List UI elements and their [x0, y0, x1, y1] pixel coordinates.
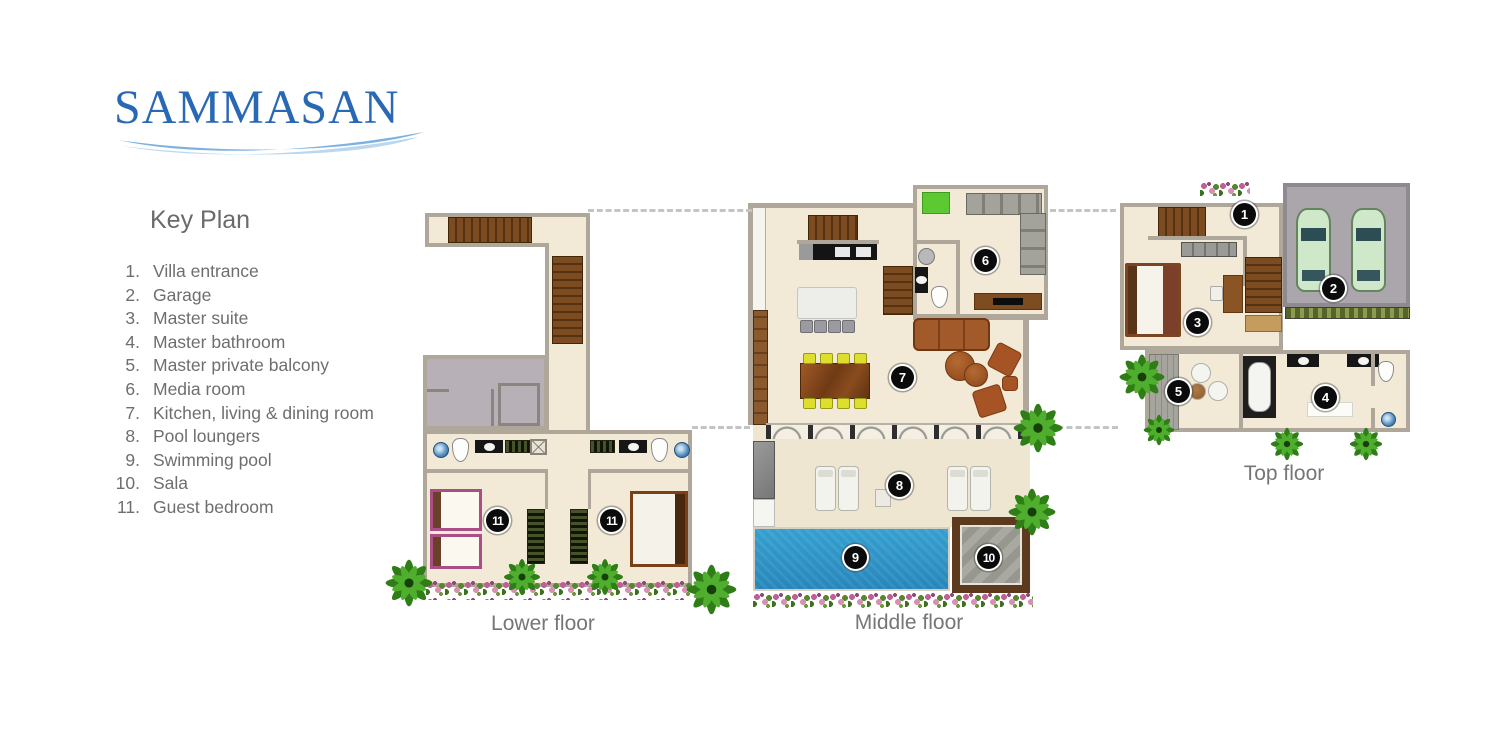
marker-guest-bedroom-2: 11 — [600, 509, 623, 532]
shower-head-icon — [433, 442, 449, 458]
round-sink — [918, 248, 935, 265]
planter-box — [753, 499, 775, 527]
marker-pool-loungers: 8 — [888, 474, 911, 497]
legend-number: 1. — [112, 260, 140, 284]
connector-line — [1050, 209, 1116, 212]
shower-cubicle — [498, 383, 540, 426]
legend-number: 11. — [112, 496, 140, 520]
marker-sala: 10 — [977, 546, 1000, 569]
legend-item: 7.Kitchen, living & dining room — [112, 402, 442, 426]
accordion-doors — [766, 423, 1025, 439]
sectional-sofa — [1020, 213, 1046, 275]
key-plan-title: Key Plan — [150, 206, 250, 235]
legend-item: 8.Pool loungers — [112, 425, 442, 449]
legend-number: 2. — [112, 284, 140, 308]
connector-line — [588, 209, 752, 212]
bar-stool — [814, 320, 827, 333]
legend-item: 4.Master bathroom — [112, 331, 442, 355]
dining-chair — [837, 353, 850, 364]
stairs — [552, 256, 583, 344]
marker-kitchen-living-dining: 7 — [891, 366, 914, 389]
palm-tree-icon — [585, 557, 625, 597]
marker-master-suite: 3 — [1186, 311, 1209, 334]
marker-media-room: 6 — [974, 249, 997, 272]
wardrobe — [570, 509, 588, 564]
shower-head-icon — [1381, 412, 1396, 427]
exterior-wall — [750, 203, 915, 208]
sink-vanity — [475, 440, 503, 453]
pool-lounger — [947, 466, 968, 511]
kitchen-island — [797, 287, 857, 319]
sink-vanity — [915, 267, 928, 293]
dining-chair — [854, 398, 867, 409]
legend-item: 9.Swimming pool — [112, 449, 442, 473]
legend-item: 3.Master suite — [112, 307, 442, 331]
interior-wall — [588, 469, 591, 509]
legend-number: 7. — [112, 402, 140, 426]
legend-item: 11.Guest bedroom — [112, 496, 442, 520]
marker-master-bathroom: 4 — [1314, 386, 1337, 409]
palm-tree-icon — [1006, 486, 1058, 538]
interior-wall — [545, 469, 548, 509]
marker-garage: 2 — [1322, 277, 1345, 300]
middle-floor-label: Middle floor — [789, 611, 1029, 635]
interior-wall — [1371, 350, 1375, 386]
side-table — [875, 489, 891, 507]
marker-guest-bedroom-1: 11 — [486, 509, 509, 532]
outdoor-shower-panel — [753, 441, 775, 499]
interior-wall — [1148, 236, 1247, 240]
twin-bed — [430, 489, 482, 531]
flower-bed — [426, 580, 692, 600]
stairs — [883, 266, 913, 315]
dining-table — [800, 363, 870, 399]
dining-chair — [820, 353, 833, 364]
legend-number: 5. — [112, 354, 140, 378]
legend-item: 10.Sala — [112, 472, 442, 496]
toilet-icon — [651, 438, 668, 462]
flower-bed — [753, 592, 1033, 609]
round-table — [1191, 363, 1211, 383]
round-table — [1189, 383, 1206, 400]
light-well — [753, 208, 766, 310]
partition-wall — [427, 389, 449, 392]
legend-number: 4. — [112, 331, 140, 355]
wardrobe — [527, 509, 545, 564]
wardrobe — [590, 440, 615, 453]
legend-number: 9. — [112, 449, 140, 473]
guest-bedrooms-block — [423, 430, 692, 587]
shrub-icon — [1142, 413, 1176, 447]
legend-number: 10. — [112, 472, 140, 496]
marker-villa-entrance: 1 — [1233, 203, 1256, 226]
bathtub-basin — [1248, 362, 1271, 412]
sink-vanity — [619, 440, 647, 453]
marker-master-balcony: 5 — [1167, 380, 1190, 403]
garage-door-strip — [1285, 307, 1410, 319]
twin-bed — [430, 534, 482, 569]
sofa — [913, 318, 990, 351]
key-plan-legend: 1.Villa entrance 2.Garage 3.Master suite… — [112, 260, 442, 520]
legend-label: Media room — [153, 378, 245, 402]
palm-tree-icon — [1011, 401, 1065, 455]
legend-number: 8. — [112, 425, 140, 449]
marker-swimming-pool: 9 — [844, 546, 867, 569]
palm-tree-icon — [684, 562, 739, 617]
closet — [1181, 242, 1237, 257]
top-floor-label: Top floor — [1164, 462, 1404, 486]
bar-stool — [800, 320, 813, 333]
stairs — [1245, 257, 1282, 313]
dining-chair — [803, 353, 816, 364]
wardrobe — [505, 440, 530, 453]
legend-item: 5.Master private balcony — [112, 354, 442, 378]
dining-chair — [803, 398, 816, 409]
palm-tree-icon — [383, 557, 435, 609]
keyplan-page: { "brand": {"name": "SAMMASAN"}, "key_pl… — [0, 0, 1500, 750]
desk-chair — [1210, 286, 1223, 301]
desk — [1223, 275, 1243, 313]
dining-chair — [837, 398, 850, 409]
legend-label: Garage — [153, 284, 211, 308]
lower-floor-label: Lower floor — [423, 612, 663, 636]
palm-tree-icon — [502, 557, 542, 597]
bar-stool — [842, 320, 855, 333]
dining-chair — [854, 353, 867, 364]
pool-lounger — [838, 466, 859, 511]
legend-item: 1.Villa entrance — [112, 260, 442, 284]
pool-lounger — [815, 466, 836, 511]
stair-landing — [1245, 315, 1282, 332]
tv-cabinet — [974, 293, 1042, 310]
brand-name: SAMMASAN — [114, 84, 434, 132]
middle-floor-plan: 6 7 8 9 10 Middle floor — [748, 183, 1068, 643]
ottoman — [964, 363, 988, 387]
legend-label: Kitchen, living & dining room — [153, 402, 374, 426]
dining-chair — [820, 398, 833, 409]
shrub-icon — [1348, 426, 1384, 462]
legend-item: 2.Garage — [112, 284, 442, 308]
brand-logo: SAMMASAN — [114, 84, 434, 164]
palm-tree-icon — [1117, 352, 1167, 402]
round-table — [1208, 381, 1228, 401]
legend-label: Swimming pool — [153, 449, 272, 473]
pool-lounger — [970, 466, 991, 511]
legend-label: Master private balcony — [153, 354, 329, 378]
shower-box — [530, 439, 547, 455]
wave-swoosh-icon — [116, 128, 428, 158]
legend-label: Pool loungers — [153, 425, 260, 449]
legend-item: 6.Media room — [112, 378, 442, 402]
interior-wall — [956, 240, 960, 315]
stairs — [1158, 207, 1206, 237]
stairs — [808, 215, 858, 243]
legend-label: Master bathroom — [153, 331, 285, 355]
legend-label: Villa entrance — [153, 260, 259, 284]
shower-head-icon — [674, 442, 690, 458]
top-floor-plan: 1 2 3 4 5 Top floor — [1115, 175, 1415, 495]
king-bed — [630, 491, 688, 567]
legend-label: Sala — [153, 472, 188, 496]
stairs — [448, 217, 532, 243]
interior-wall — [913, 240, 960, 244]
connector-line — [692, 426, 750, 429]
bar-stool — [828, 320, 841, 333]
interior-wall — [588, 469, 688, 473]
flower-box — [1200, 181, 1250, 196]
partition-wall — [491, 389, 494, 426]
side-table — [1002, 376, 1018, 391]
car — [1351, 208, 1386, 292]
grass-mat — [922, 192, 950, 214]
master-bed — [1125, 263, 1181, 337]
sink-vanity — [1287, 354, 1319, 367]
legend-label: Master suite — [153, 307, 248, 331]
shrub-icon — [1269, 426, 1305, 462]
legend-number: 6. — [112, 378, 140, 402]
kitchen-counter — [799, 244, 877, 260]
side-deck — [753, 310, 768, 425]
sectional-sofa — [966, 193, 1042, 215]
legend-label: Guest bedroom — [153, 496, 274, 520]
bathtub — [1243, 356, 1276, 418]
toilet-icon — [452, 438, 469, 462]
interior-wall — [427, 469, 545, 473]
legend-number: 3. — [112, 307, 140, 331]
utility-room — [423, 355, 548, 430]
